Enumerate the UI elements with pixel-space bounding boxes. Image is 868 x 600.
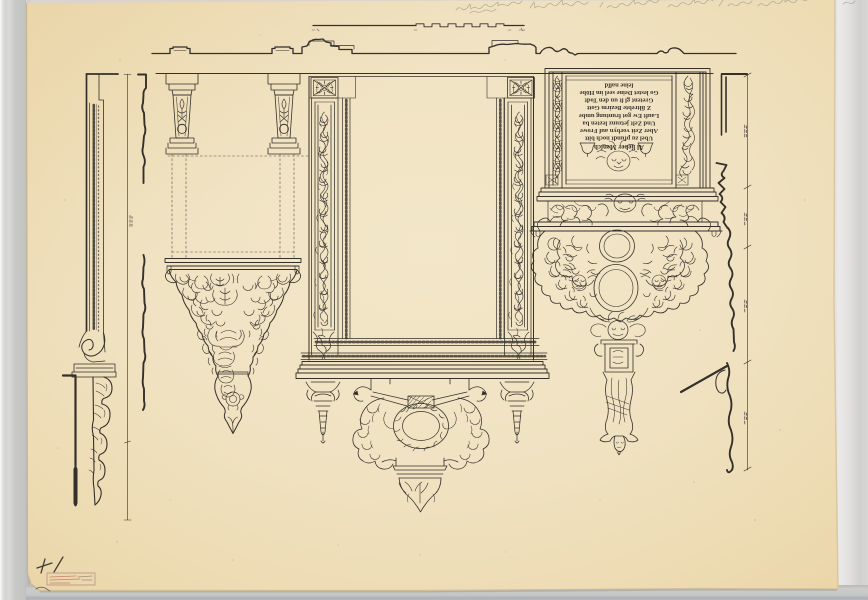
svg-text:Al lieber Menſch: Al lieber Menſch: [594, 143, 644, 151]
svg-text:Und Zelt jetzunz lezten ba: Und Zelt jetzunz lezten ba: [582, 119, 656, 126]
svg-text:ſeine naſſd: ſeine naſſd: [604, 81, 633, 88]
svg-text:Ubel zu pfundt noch bitt: Ubel zu pfundt noch bitt: [584, 135, 653, 142]
svg-text:Go lestet Deine seel im Höbe: Go lestet Deine seel im Höbe: [579, 89, 658, 96]
svg-text:Lauft Ew got fruntung umbe: Lauft Ew got fruntung umbe: [579, 112, 659, 119]
svg-text:Z ſiltrebte Bezirm Gott: Z ſiltrebte Bezirm Gott: [586, 104, 651, 111]
svg-text:Aber Zeit vorbyn auf Frowe: Aber Zeit vorbyn auf Frowe: [580, 127, 658, 134]
svg-text:Gretent gl ſt un den Todt: Gretent gl ſt un den Todt: [584, 97, 654, 104]
